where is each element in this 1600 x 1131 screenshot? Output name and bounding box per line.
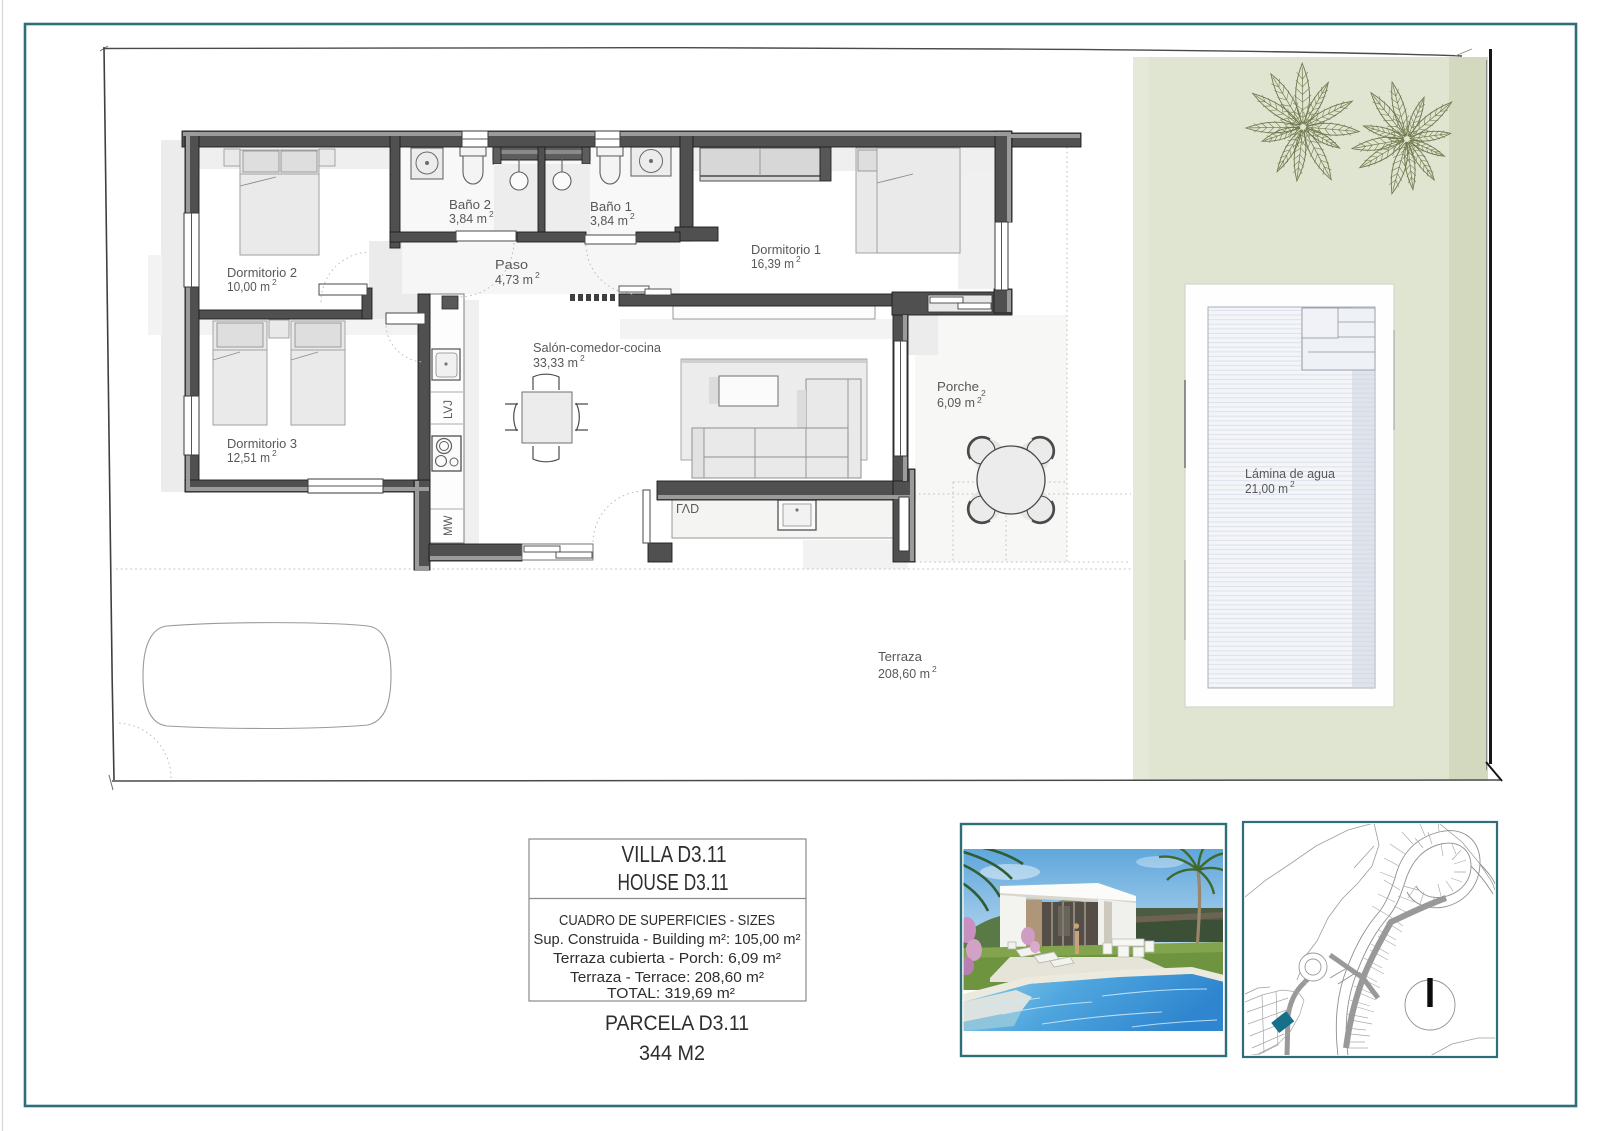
svg-text:Baño 1: Baño 1 (590, 199, 632, 214)
svg-text:4,73 m: 4,73 m (495, 272, 533, 287)
svg-text:16,39 m: 16,39 m (751, 256, 794, 271)
svg-text:Paso: Paso (495, 257, 528, 272)
svg-text:2: 2 (796, 254, 801, 264)
svg-text:2: 2 (580, 353, 585, 363)
svg-text:2: 2 (630, 211, 635, 221)
svg-text:Terraza cubierta - Porch: 6,0: Terraza cubierta - Porch: 6,09 m² (553, 951, 781, 967)
svg-text:3,84 m: 3,84 m (590, 213, 628, 228)
svg-text:CUADRO DE SUPERFICIES - SIZES: CUADRO DE SUPERFICIES - SIZES (559, 913, 775, 929)
svg-text:LVJ: LVJ (443, 400, 455, 419)
svg-text:Sup. Construida - Building m²: Sup. Construida - Building m²: 105,00 m² (534, 932, 801, 948)
svg-text:2: 2 (981, 388, 986, 398)
svg-text:208,60 m: 208,60 m (878, 666, 930, 681)
svg-text:10,00 m: 10,00 m (227, 279, 270, 294)
svg-text:2: 2 (1290, 479, 1295, 489)
svg-text:Terraza - Terrace: 208,60 m²: Terraza - Terrace: 208,60 m² (570, 970, 764, 986)
svg-text:2: 2 (272, 277, 277, 287)
svg-text:Salón-comedor-cocina: Salón-comedor-cocina (533, 340, 662, 355)
svg-text:2: 2 (535, 270, 540, 280)
svg-text:33,33 m: 33,33 m (533, 355, 578, 370)
svg-text:12,51 m: 12,51 m (227, 450, 270, 465)
svg-text:6,09 m: 6,09 m (937, 395, 975, 410)
svg-text:ΓΛD: ΓΛD (676, 502, 699, 516)
svg-text:Dormitorio 1: Dormitorio 1 (751, 242, 821, 257)
svg-text:2: 2 (932, 664, 937, 674)
svg-text:Dormitorio 3: Dormitorio 3 (227, 436, 297, 451)
svg-text:2: 2 (272, 448, 277, 458)
svg-text:21,00 m: 21,00 m (1245, 481, 1288, 496)
svg-text:Dormitorio 2: Dormitorio 2 (227, 265, 297, 280)
svg-text:Baño 2: Baño 2 (449, 197, 491, 212)
svg-text:2: 2 (977, 395, 982, 405)
svg-text:TOTAL: 319,69 m²: TOTAL: 319,69 m² (607, 986, 735, 1002)
svg-text:2: 2 (489, 209, 494, 219)
svg-text:344 M2: 344 M2 (639, 1042, 705, 1065)
svg-text:Terraza: Terraza (878, 649, 923, 664)
svg-text:MW: MW (443, 515, 455, 536)
svg-text:3,84 m: 3,84 m (449, 211, 487, 226)
svg-text:Porche: Porche (937, 379, 979, 394)
svg-text:VILLA D3.11: VILLA D3.11 (622, 841, 727, 867)
svg-text:HOUSE D3.11: HOUSE D3.11 (618, 869, 729, 895)
svg-text:PARCELA D3.11: PARCELA D3.11 (605, 1012, 749, 1035)
